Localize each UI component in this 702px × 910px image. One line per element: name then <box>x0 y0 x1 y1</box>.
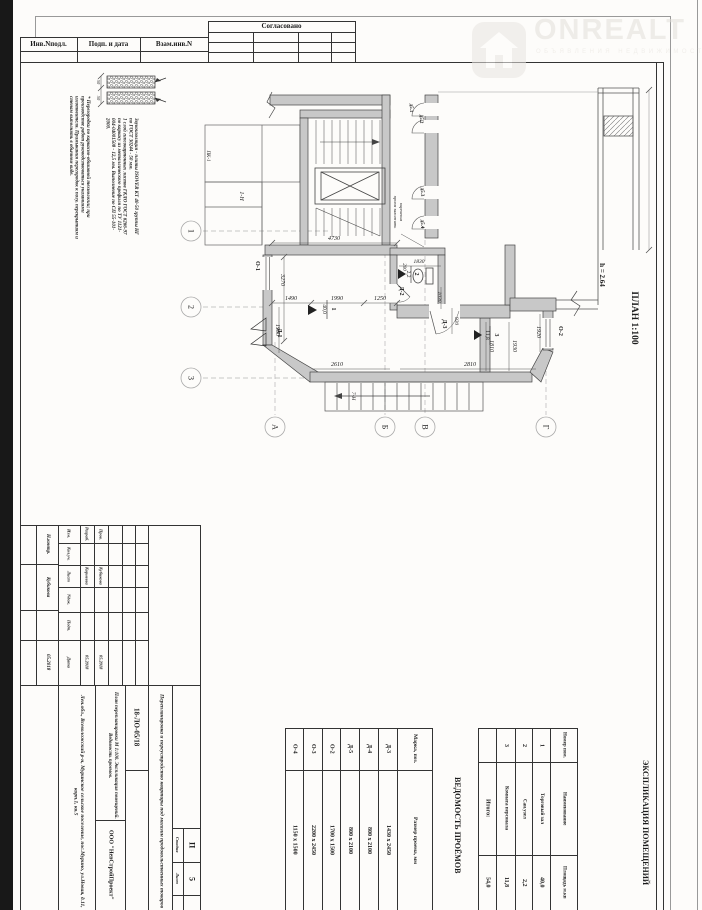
dim-920: 920 <box>453 317 459 326</box>
room1-area: 40,0 <box>321 304 327 314</box>
stair-flight-lower <box>316 208 380 236</box>
openings-col1-header: Марка, поз. <box>397 728 432 770</box>
row1-role: Разраб. <box>80 525 94 543</box>
dim-1250: 1250 <box>374 296 386 302</box>
stair-arrow <box>372 139 380 145</box>
rooms-table-title: ЭКСПЛИКАЦИЯ ПОМЕЩЕНИЙ <box>634 735 656 910</box>
dim-1030: 1030 <box>436 292 442 303</box>
label-O1: О-1 <box>254 261 260 271</box>
ncontr-name: Кубикова <box>36 564 58 610</box>
dim-4730: 4730 <box>328 235 340 242</box>
sheet-value: 5 <box>183 862 200 895</box>
adjacent-section <box>438 87 652 309</box>
detail-dim: 50 <box>96 96 101 101</box>
room2-number: 2 <box>413 273 419 276</box>
sheet-label: Лист <box>172 862 183 895</box>
row2-role: Пров. <box>94 525 108 543</box>
floor-plan: 50 50 ПК-1 1-Н <box>0 0 702 470</box>
sheet-contents: План перепланировки М 1:100. Экспликация… <box>95 685 129 826</box>
entrance-stair-label: 7-Н <box>350 392 356 402</box>
row2-date: 05.2018 <box>94 640 108 685</box>
titleblock-line <box>122 525 123 685</box>
axis-lines <box>203 231 546 415</box>
dim-1930: 1930 <box>511 340 517 352</box>
dim-1990: 1990 <box>331 296 343 302</box>
ncontr-date: 05.2018 <box>36 640 58 685</box>
rooms-col3-header: Площадь м.кв <box>550 855 577 910</box>
room-area: 11,8 <box>496 855 515 910</box>
doc-number: 18-ЛО-05/18 <box>125 685 148 770</box>
titleblock-line <box>108 525 109 685</box>
opening-mark: О-3 <box>303 728 322 770</box>
wall-detail: 50 50 <box>96 73 166 107</box>
break-symbols <box>267 92 580 316</box>
room3-area: 11,8 <box>484 330 490 340</box>
stair-flight-upper <box>316 120 380 164</box>
axis-2: 2 <box>187 305 196 309</box>
room1-number: 1 <box>330 308 336 311</box>
room-name: Комната персонала <box>496 762 515 855</box>
label-d52: д5.2 <box>418 115 423 124</box>
opening-mark: Д-4 <box>359 728 378 770</box>
axis-V: В <box>421 424 430 429</box>
rooms-col2-header: Наименование <box>550 762 577 855</box>
plan-title: ПЛАН 1:100 <box>629 291 639 345</box>
opening-mark: Д-5 <box>340 728 359 770</box>
hdr-data: Дата <box>58 640 80 685</box>
titleblock-line <box>20 610 58 611</box>
hdr-podp: Подп. <box>58 612 80 640</box>
axis-3: 3 <box>187 376 196 380</box>
room-number: 3 <box>496 728 515 762</box>
row1-name: Корнеева <box>80 565 94 587</box>
dim-1830: 1830 <box>414 259 425 265</box>
label-D2: Д-2 <box>398 286 404 295</box>
porch-room-label: 1-Н <box>238 191 244 201</box>
hdr-izm: Изм. <box>58 525 80 543</box>
row2-name: Кубикова <box>94 565 108 587</box>
rooms-total-label: Итого: <box>478 762 496 855</box>
openings-table-line <box>432 728 433 910</box>
dim-1490: 1490 <box>285 295 297 302</box>
ceiling-height: h = 2.64 <box>598 263 606 287</box>
row1-date: 05.2018 <box>80 640 94 685</box>
axis-1: 1 <box>187 229 196 233</box>
opening-mark: О-4 <box>285 728 303 770</box>
stage-label: Стадия <box>172 828 183 862</box>
titleblock-line <box>200 525 201 910</box>
brick-note-line1: проем заложить <box>393 196 398 229</box>
opening-size: 1430 х 2450 <box>378 770 397 910</box>
ncontr-role: Н.контр. <box>36 525 58 564</box>
dim-1810: 1810 <box>488 340 494 352</box>
openings-table-title: ВЕДОМОСТЬ ПРОЁМОВ <box>446 750 468 900</box>
dim-3270: 3270 <box>279 273 285 286</box>
axis-B: Б <box>381 425 390 430</box>
window-O1 <box>262 257 273 290</box>
stage-value: П <box>183 828 200 862</box>
room-number: 1 <box>532 728 550 762</box>
titleblock-line <box>135 525 136 685</box>
room-name: Торговый зал <box>532 762 550 855</box>
label-d54: д5.4 <box>419 220 424 229</box>
dim-2810: 2810 <box>464 362 476 368</box>
brick-note-line2: кирпичом <box>399 203 404 221</box>
opening-mark: Д-3 <box>378 728 397 770</box>
drawing-sheet: ONREALT ОБЪЯВЛЕНИЯ НЕДВИЖИМОСТИ Инв.Nпод… <box>0 0 702 910</box>
hdr-koluch: Кол.уч. <box>58 543 80 565</box>
opening-size: 800 х 2100 <box>340 770 359 910</box>
window-O2 <box>542 318 554 348</box>
rooms-col1-header: Номер пом. <box>550 728 577 762</box>
rooms-total-value: 54,0 <box>478 855 496 910</box>
label-D1: Д-1 <box>276 328 282 337</box>
room3-number: 3 <box>493 334 499 337</box>
object-address: Лен.обл., Всеволожский р-н, Муринское се… <box>58 685 99 910</box>
opening-size: 1700 х 1500 <box>322 770 340 910</box>
entrance-stair-arrow <box>334 393 342 399</box>
opening-size: 2200 х 2450 <box>303 770 322 910</box>
opening-size: 800 х 2100 <box>359 770 378 910</box>
detail-dim: 50 <box>96 80 101 85</box>
project-title: Перепланировка и переустройство квартиры… <box>148 685 174 910</box>
elevator-shaft <box>315 168 385 204</box>
titleblock-line <box>172 895 200 896</box>
opening-mark: О-2 <box>322 728 340 770</box>
porch <box>205 125 300 245</box>
label-O2: О-2 <box>557 326 563 336</box>
label-D3: Д-3 <box>441 319 447 328</box>
room-number: 2 <box>515 728 532 762</box>
axis-A: А <box>271 424 280 430</box>
room2-area: 2,2 <box>405 271 411 278</box>
room-area: 2,2 <box>515 855 532 910</box>
openings-col2-header: Размер проема, мм <box>397 770 432 910</box>
room-name: Сан.узел <box>515 762 532 855</box>
label-d51: д5.1 <box>408 104 413 113</box>
toilet-icon <box>413 268 433 284</box>
opening-size: 1150 х 1500 <box>285 770 303 910</box>
dim-2610: 2610 <box>331 362 343 368</box>
company-name: ООО "НевСтройПроект" <box>95 820 125 910</box>
walls <box>263 95 556 382</box>
hdr-list: Лист <box>58 565 80 587</box>
dim-1920: 1920 <box>535 326 541 338</box>
porch-label: ПК-1 <box>205 149 210 161</box>
axis-G: Г <box>542 425 551 430</box>
axis-labels: 1 2 3 А Б В Г <box>187 229 551 430</box>
hdr-ndok: Nдок. <box>58 587 80 612</box>
entrance-stairs <box>325 382 483 411</box>
room-area: 40,0 <box>532 855 550 910</box>
label-d53: д5.3 <box>419 188 424 197</box>
rooms-table-line <box>577 728 578 910</box>
